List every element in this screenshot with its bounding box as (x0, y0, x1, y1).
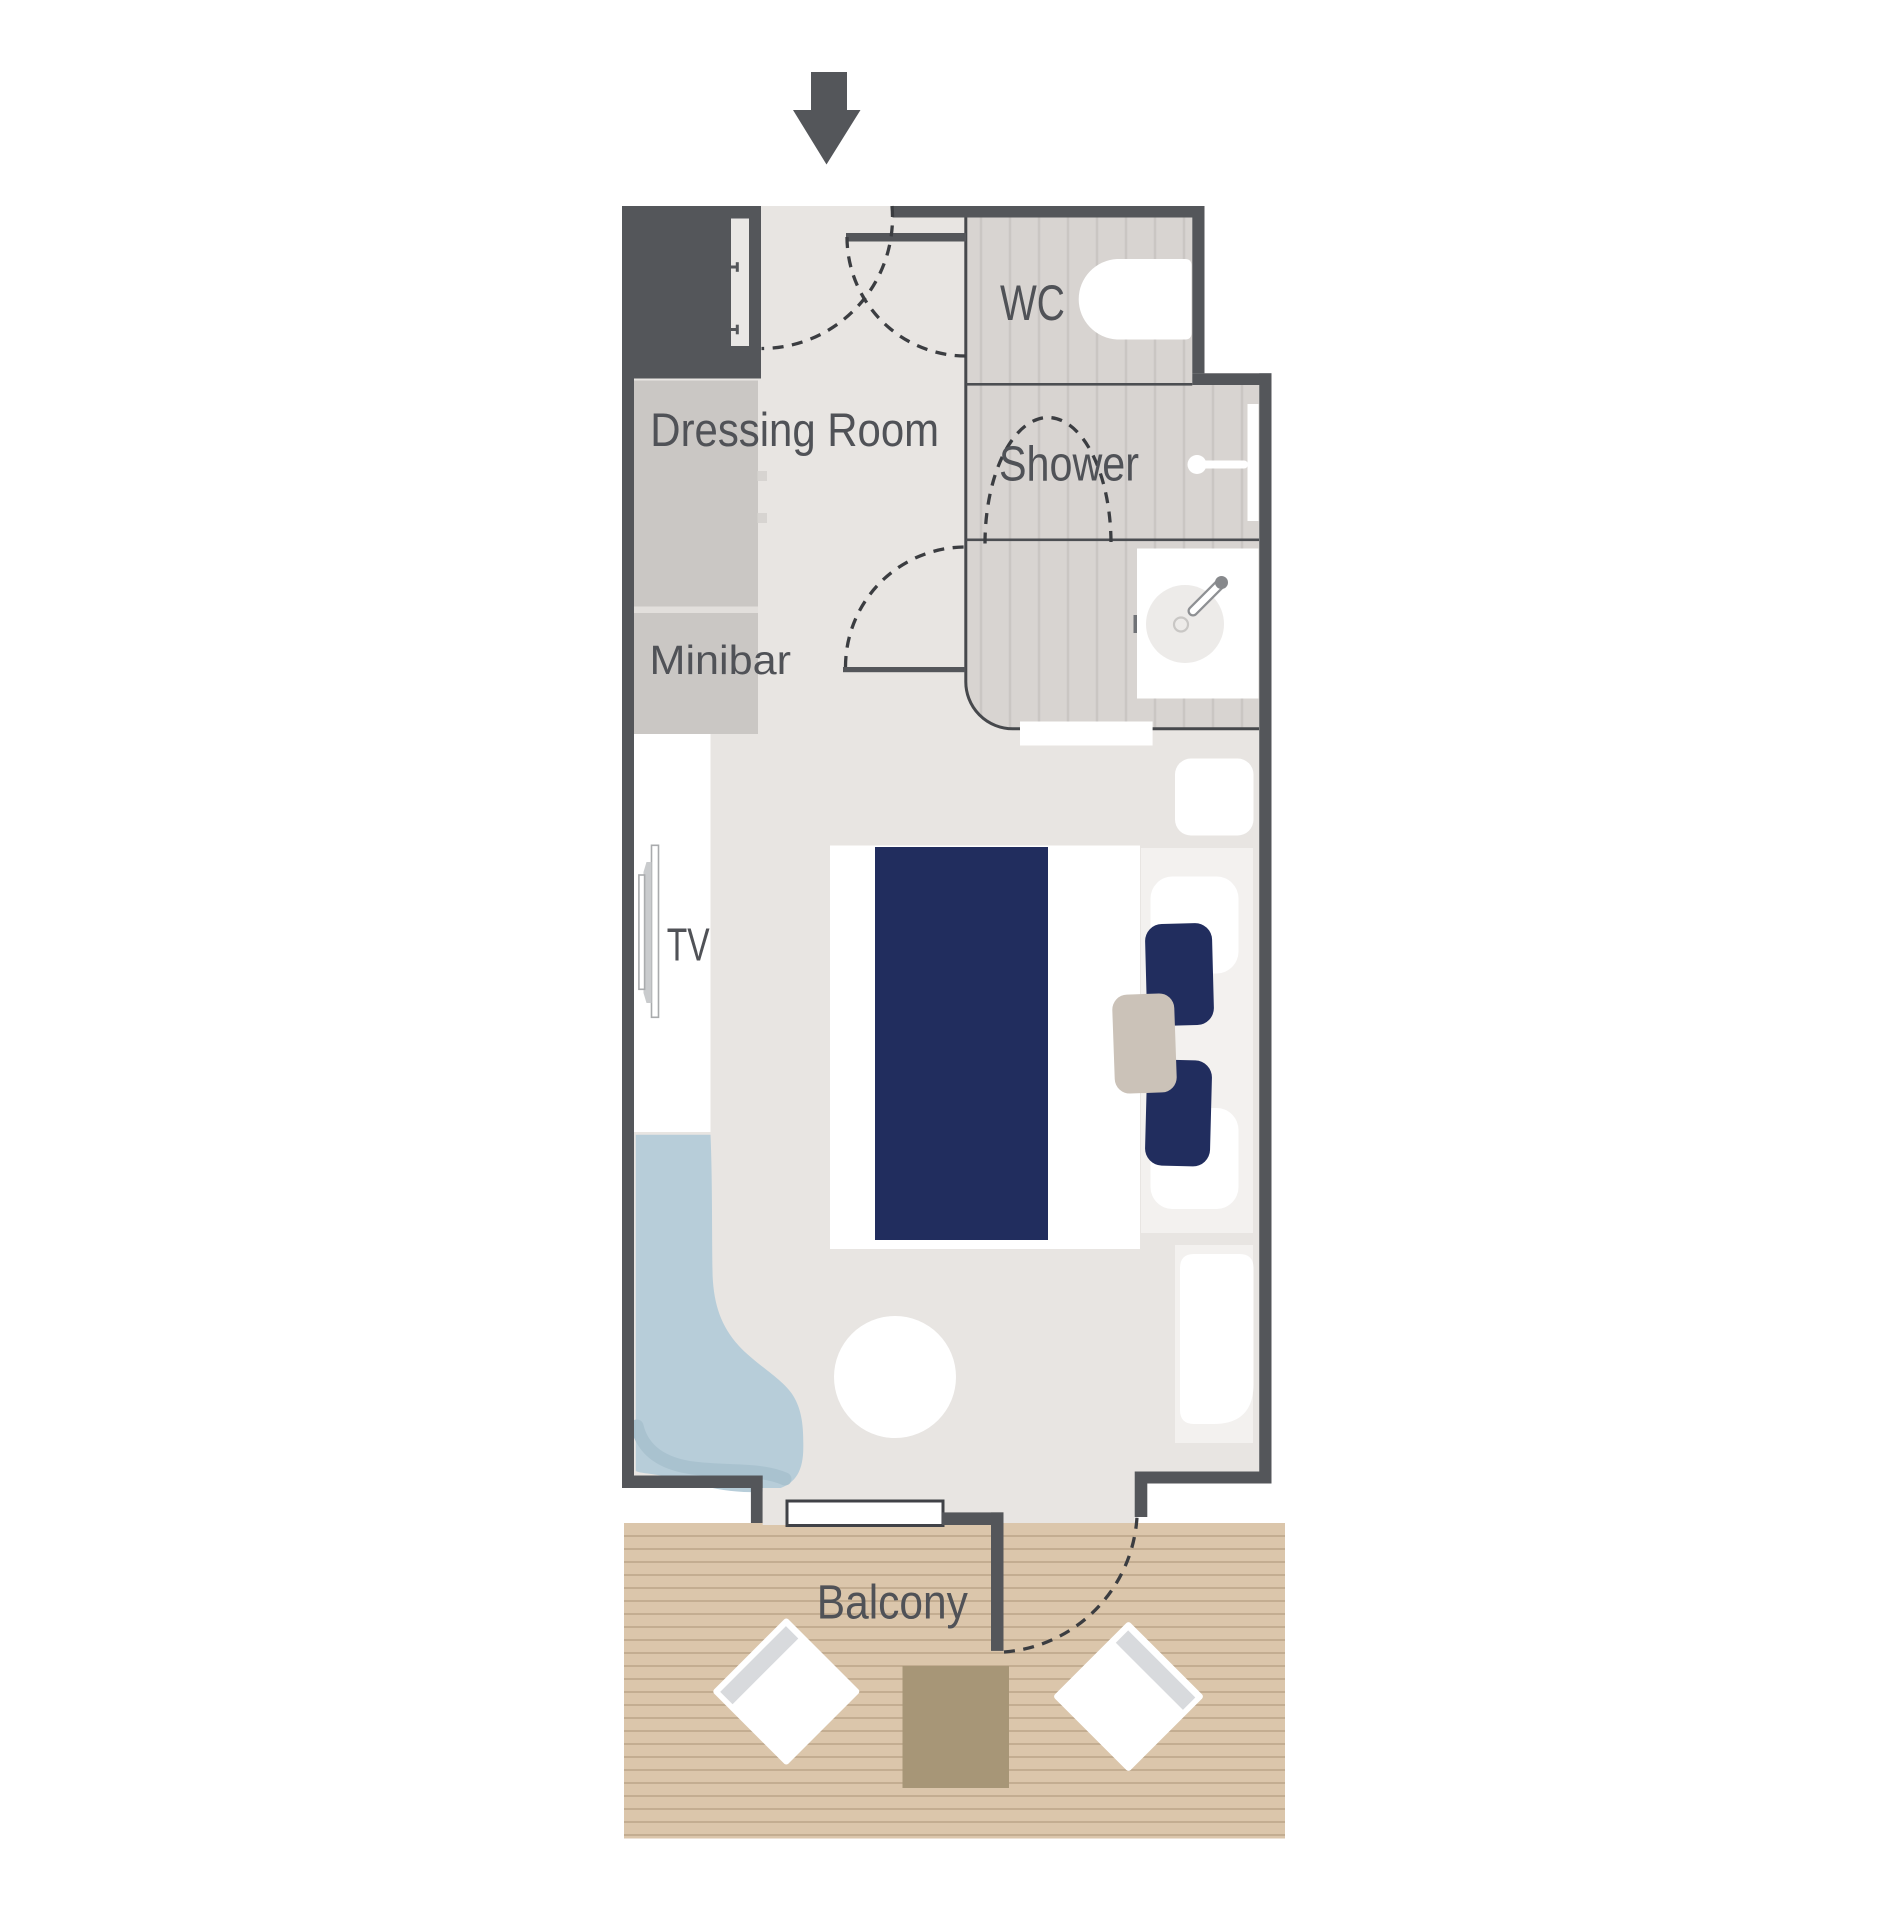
svg-text:Dressing Room: Dressing Room (650, 405, 939, 457)
svg-text:Balcony: Balcony (817, 1575, 968, 1629)
svg-text:WC: WC (1000, 274, 1065, 331)
svg-text:Minibar: Minibar (650, 637, 792, 683)
svg-text:Shower: Shower (999, 436, 1139, 491)
svg-text:TV: TV (667, 919, 710, 970)
